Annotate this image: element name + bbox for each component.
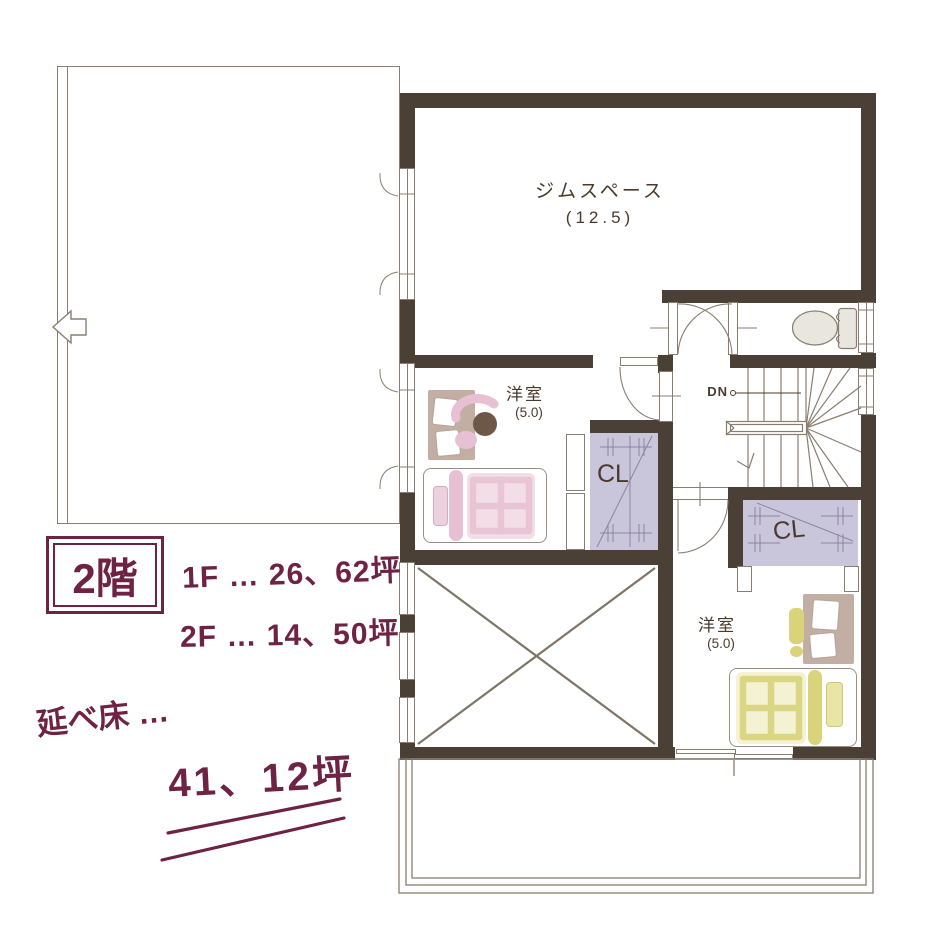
floor-badge-label: 2階 [72,545,137,606]
bedroom2-label: 洋室 [672,611,762,636]
bedroom2-door-arc [678,482,728,553]
toilet-icon [793,309,857,349]
closet2-label: CL [772,514,807,546]
bedroom2-size: (5.0) [676,636,766,651]
gym-room-size: (12.5) [500,208,700,228]
stairs-dn-label: DN [698,384,728,399]
gym-room-label: ジムスペース [500,176,700,203]
balcony-railing [399,759,873,893]
total-area-value: 41、12坪 [167,741,357,809]
area-line-2f: 2F … 14、50坪 [180,608,400,656]
bedroom1-duvet-grid [473,480,529,531]
floor-badge-box: 2階 [46,536,164,614]
closet1-hatch [597,436,652,547]
linework-overlay [0,0,940,940]
closet1-label: CL [597,460,629,489]
floor-plan-canvas: ジムスペース (12.5) 洋室 (5.0) 洋室 (5.0) CL CL DN… [0,0,940,940]
floor-badge-inner: 2階 [53,543,157,607]
bedroom2-duvet-grid [743,679,799,737]
bedroom1-label: 洋室 [480,380,570,405]
bedroom1-door-arc [620,367,681,420]
bedroom1-size: (5.0) [484,405,574,420]
void-cross [418,568,655,744]
area-line-1f: 1F … 26、62坪 [181,545,402,597]
total-underline [162,799,344,860]
double-door-arcs [650,304,757,354]
stairs-dn-leader [731,391,802,396]
staircase [726,368,861,487]
roof-arrow-icon [53,311,86,343]
